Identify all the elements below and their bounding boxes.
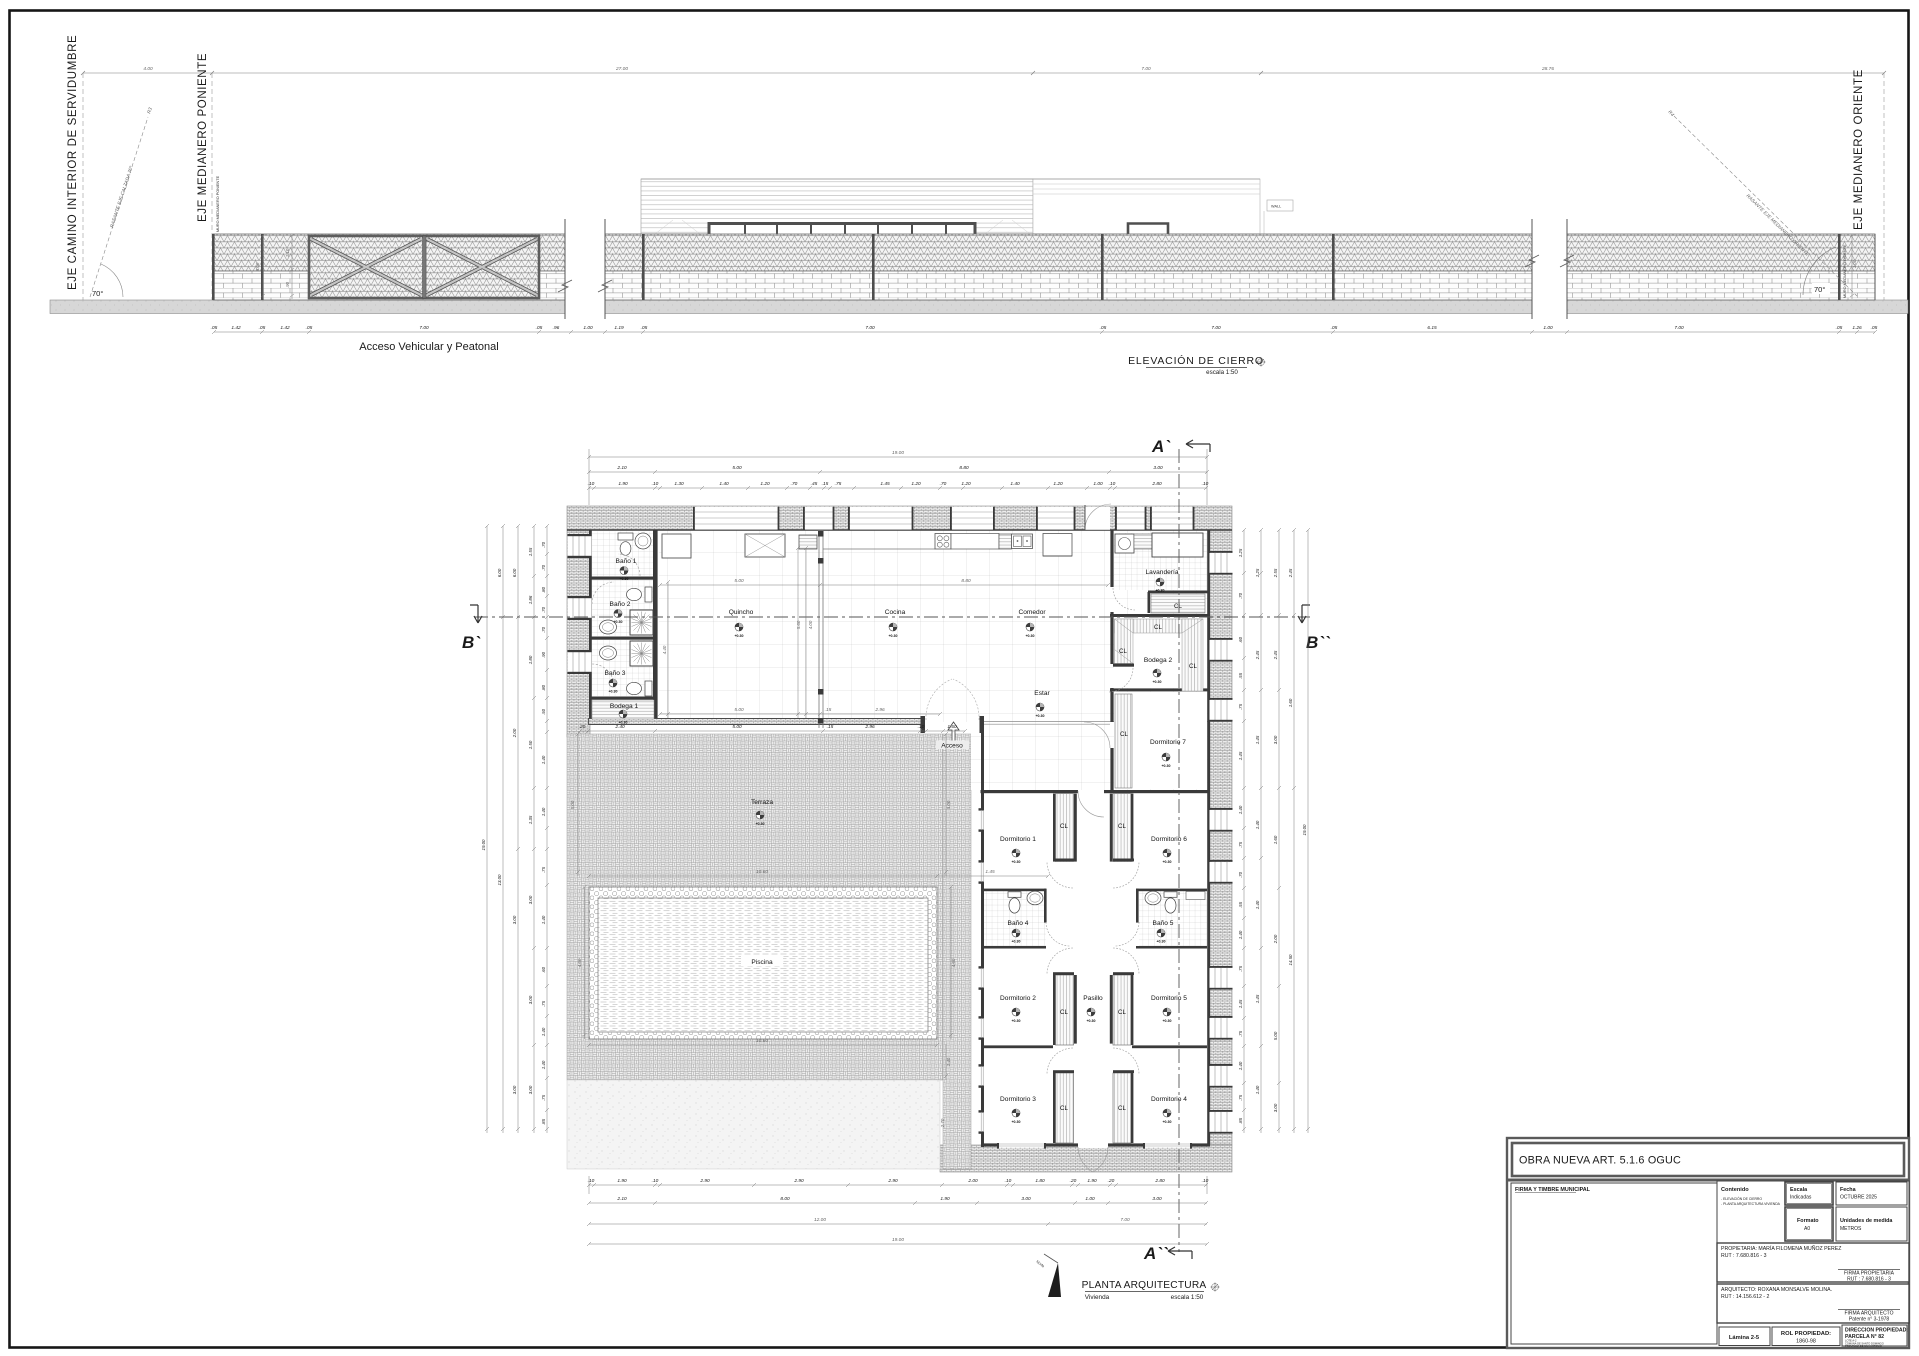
svg-text:1.25: 1.25: [1255, 568, 1260, 577]
svg-text:ELEVACIÓN DE CIERRO: ELEVACIÓN DE CIERRO: [1128, 354, 1264, 367]
svg-text:.70: .70: [791, 481, 798, 487]
svg-text:.10: .10: [1202, 1178, 1209, 1184]
svg-text:3.00: 3.00: [528, 895, 533, 904]
svg-text:2.10: 2.10: [616, 1196, 627, 1202]
svg-text:1.50: 1.50: [528, 740, 533, 749]
svg-text:1.45: 1.45: [880, 481, 890, 487]
svg-text:1860-98: 1860-98: [1796, 1339, 1816, 1345]
svg-text:4.40: 4.40: [662, 645, 667, 654]
svg-text:7.00: 7.00: [1211, 325, 1221, 331]
svg-text:2.00: 2.00: [1273, 934, 1278, 944]
svg-text:2.10: 2.10: [616, 465, 627, 471]
svg-text:Patente n° 3-1978: Patente n° 3-1978: [1849, 1317, 1890, 1323]
svg-text:Vivienda: Vivienda: [1085, 1294, 1110, 1301]
svg-text:+0.30: +0.30: [1011, 1019, 1020, 1023]
svg-text:3.00: 3.00: [1273, 735, 1278, 744]
svg-text:1.40: 1.40: [1238, 1061, 1243, 1070]
svg-text:OCTUBRE 2025: OCTUBRE 2025: [1840, 1195, 1877, 1201]
svg-text:1.55: 1.55: [528, 547, 533, 556]
svg-text:.55: .55: [1238, 901, 1243, 908]
svg-text:.60: .60: [541, 966, 546, 973]
svg-text:.70: .70: [1238, 592, 1243, 599]
svg-text:2.80: 2.80: [1154, 1178, 1165, 1184]
svg-text:Acceso Vehicular y Peatonal: Acceso Vehicular y Peatonal: [359, 341, 498, 353]
svg-text:3.00: 3.00: [1153, 465, 1163, 471]
svg-text:Contenido: Contenido: [1721, 1187, 1749, 1193]
svg-text:CL: CL: [1060, 823, 1068, 830]
svg-text:Bodega 1: Bodega 1: [610, 703, 639, 710]
svg-text:.75: .75: [1238, 965, 1243, 972]
svg-text:5.00: 5.00: [1273, 1031, 1278, 1040]
svg-text:1.45: 1.45: [1255, 994, 1260, 1003]
svg-text:1.60: 1.60: [1273, 835, 1278, 844]
svg-text:.05: .05: [306, 325, 313, 331]
svg-text:+0.30: +0.30: [888, 634, 897, 638]
svg-text:5.00: 5.00: [734, 578, 744, 584]
svg-text:2.90: 2.90: [793, 1178, 804, 1184]
svg-text:CL: CL: [1154, 624, 1162, 631]
svg-text:escala 1:50: escala 1:50: [1171, 1294, 1204, 1301]
svg-text:CL: CL: [1060, 1105, 1068, 1112]
svg-text:.75: .75: [1238, 1030, 1243, 1037]
svg-text:2.45: 2.45: [1273, 650, 1278, 660]
svg-text:1.45: 1.45: [1238, 999, 1243, 1008]
svg-text:1.45: 1.45: [1255, 735, 1260, 744]
svg-text:2.96: 2.96: [874, 707, 885, 713]
svg-text:CL: CL: [1119, 648, 1127, 655]
svg-text:Baño 3: Baño 3: [605, 670, 626, 677]
svg-text:MURO MEDIANERO ORIENTE: MURO MEDIANERO ORIENTE: [1843, 244, 1847, 298]
svg-text:12.00: 12.00: [814, 1217, 826, 1223]
svg-text:Indicadas: Indicadas: [1790, 1195, 1812, 1201]
svg-text:28.76: 28.76: [1541, 66, 1554, 72]
svg-text:escala 1:50: escala 1:50: [1206, 369, 1238, 376]
svg-text:1.00: 1.00: [583, 325, 593, 331]
svg-text:.75: .75: [835, 481, 842, 487]
svg-text:.70: .70: [940, 481, 947, 487]
svg-text:3.00: 3.00: [1152, 1196, 1162, 1202]
svg-text:.10: .10: [1109, 481, 1116, 487]
svg-text:+0.30: +0.30: [618, 721, 627, 725]
svg-text:1.40: 1.40: [541, 915, 546, 924]
svg-text:.70: .70: [1238, 871, 1243, 878]
svg-text:2.90: 2.90: [699, 1178, 710, 1184]
svg-text:1.40: 1.40: [1010, 481, 1020, 487]
svg-text:.75: .75: [541, 1094, 546, 1101]
svg-text:RUT : 7.680.816 - 3: RUT : 7.680.816 - 3: [1721, 1253, 1767, 1259]
svg-text:7.00: 7.00: [1120, 1217, 1130, 1223]
svg-text:FIRMA Y TIMBRE MUNICIPAL: FIRMA Y TIMBRE MUNICIPAL: [1515, 1187, 1591, 1193]
svg-text:+0.30: +0.30: [1035, 714, 1044, 718]
svg-text:1.90: 1.90: [617, 1178, 627, 1184]
svg-text:B``: B``: [1306, 633, 1331, 652]
svg-text:.05: .05: [1331, 325, 1338, 331]
svg-text:Fecha: Fecha: [1840, 1187, 1857, 1193]
svg-text:PROVINCIA DE SAN ANTONIO: PROVINCIA DE SAN ANTONIO: [1845, 1344, 1882, 1348]
svg-text:- ELEVACIÓN DE CIERRO: - ELEVACIÓN DE CIERRO: [1721, 1196, 1762, 1201]
svg-text:.10: .10: [1005, 1178, 1012, 1184]
svg-text:EJE CAMINO INTERIOR DE SERVID: EJE CAMINO INTERIOR DE SERVIDUMBRE: [67, 35, 79, 290]
svg-text:CL: CL: [1118, 1105, 1126, 1112]
svg-text:1.90: 1.90: [1087, 1178, 1097, 1184]
svg-text:1.90: 1.90: [618, 481, 628, 487]
svg-text:6.15: 6.15: [1427, 325, 1437, 331]
svg-text:.05: .05: [641, 325, 648, 331]
svg-text:1.80: 1.80: [1035, 1178, 1045, 1184]
svg-text:7.00: 7.00: [419, 325, 429, 331]
svg-text:- PLANTA ARQUITECTURA VIVIENDA: - PLANTA ARQUITECTURA VIVIENDA: [1721, 1202, 1781, 1206]
svg-text:Terraza: Terraza: [751, 799, 773, 806]
svg-text:3.00: 3.00: [528, 1085, 533, 1094]
svg-text:.75: .75: [1238, 1094, 1243, 1101]
svg-text:14.50: 14.50: [1288, 954, 1293, 966]
svg-text:1.00: 1.00: [1852, 259, 1857, 268]
svg-text:1.30: 1.30: [674, 481, 684, 487]
svg-text:1.20: 1.20: [760, 481, 770, 487]
svg-text:Baño 5: Baño 5: [1153, 920, 1174, 927]
svg-text:1.40: 1.40: [1238, 805, 1243, 814]
svg-text:Unidades de medida: Unidades de medida: [1840, 1218, 1893, 1224]
svg-text:1.45: 1.45: [1238, 751, 1243, 760]
svg-text:Piscina: Piscina: [751, 959, 773, 966]
svg-text:.10: .10: [918, 724, 925, 730]
svg-text:A0: A0: [1804, 1226, 1810, 1232]
svg-text:Dormitorio 3: Dormitorio 3: [1000, 1096, 1036, 1103]
svg-text:27.00: 27.00: [615, 66, 628, 72]
svg-text:19.00: 19.00: [892, 450, 904, 456]
svg-text:.85: .85: [541, 1118, 546, 1125]
svg-text:+0.30: +0.30: [613, 620, 622, 624]
svg-text:1.80: 1.80: [528, 655, 533, 664]
svg-text:CL: CL: [1118, 823, 1126, 830]
svg-text:Estar: Estar: [1034, 690, 1050, 697]
svg-text:8.00: 8.00: [780, 1196, 790, 1202]
svg-text:+0.30: +0.30: [1011, 940, 1020, 944]
svg-text:1.40: 1.40: [946, 1057, 951, 1066]
svg-text:DIRECCION PROPIEDAD:: DIRECCION PROPIEDAD:: [1845, 1328, 1908, 1334]
svg-text:19.00: 19.00: [892, 1237, 904, 1243]
svg-text:CL: CL: [1120, 731, 1128, 738]
svg-text:ARQUITECTO: ROXANA MONSALVE MO: ARQUITECTO: ROXANA MONSALVE MOLINA.: [1721, 1287, 1832, 1293]
svg-text:1.00: 1.00: [1543, 325, 1553, 331]
svg-text:6.00: 6.00: [497, 568, 502, 577]
svg-text:.20: .20: [1070, 1178, 1077, 1184]
svg-text:.75: .75: [541, 1000, 546, 1007]
svg-text:+0.30: +0.30: [1011, 860, 1020, 864]
svg-text:EJE MEDIANERO PONIENTE: EJE MEDIANERO PONIENTE: [197, 53, 209, 222]
svg-text:+0.30: +0.30: [755, 822, 764, 826]
svg-text:CL: CL: [1060, 1009, 1068, 1016]
svg-text:3.00: 3.00: [512, 1085, 517, 1094]
svg-text:.85: .85: [1238, 1117, 1243, 1124]
svg-text:Dormitorio 1: Dormitorio 1: [1000, 836, 1036, 843]
svg-text:8.80: 8.80: [959, 465, 969, 471]
svg-text:6.00: 6.00: [512, 568, 517, 577]
svg-text:Formato: Formato: [1797, 1218, 1819, 1224]
svg-text:1.20: 1.20: [1053, 481, 1063, 487]
svg-text:.96: .96: [553, 325, 560, 331]
svg-text:.05: .05: [1871, 325, 1878, 331]
svg-text:.15: .15: [827, 724, 834, 730]
svg-text:1.45: 1.45: [985, 869, 995, 875]
svg-text:1.40: 1.40: [1255, 820, 1260, 829]
svg-text:+0.30: +0.30: [1086, 1019, 1095, 1023]
svg-text:2.40: 2.40: [614, 724, 625, 730]
svg-text:Bodega 2: Bodega 2: [1144, 657, 1173, 664]
svg-text:Dormitorio 5: Dormitorio 5: [1151, 995, 1187, 1002]
svg-text:2.96: 2.96: [864, 724, 875, 730]
svg-text:.15: .15: [822, 481, 829, 487]
svg-text:1.40: 1.40: [541, 1060, 546, 1069]
svg-text:1.00: 1.00: [1085, 1196, 1095, 1202]
svg-text:.70: .70: [541, 564, 546, 571]
svg-text:+0.30: +0.30: [734, 634, 743, 638]
svg-text:1.25: 1.25: [1238, 548, 1243, 557]
svg-text:2.45: 2.45: [1288, 568, 1293, 578]
svg-text:1.42: 1.42: [231, 325, 241, 331]
svg-text:Pasillo: Pasillo: [1083, 995, 1103, 1002]
svg-text:5.00: 5.00: [570, 800, 575, 809]
svg-text:+0.30: +0.30: [1025, 634, 1034, 638]
svg-text:.10: .10: [588, 481, 595, 487]
svg-text:Dormitorio 4: Dormitorio 4: [1151, 1096, 1187, 1103]
svg-text:70°: 70°: [1814, 285, 1825, 294]
svg-text:.90: .90: [285, 281, 290, 288]
svg-text:13.00: 13.00: [497, 874, 502, 886]
svg-text:1.20: 1.20: [911, 481, 921, 487]
svg-text:70°: 70°: [92, 289, 103, 298]
svg-text:1.40: 1.40: [541, 1027, 546, 1036]
svg-text:1.86: 1.86: [528, 595, 533, 604]
svg-text:2.80: 2.80: [1151, 481, 1162, 487]
svg-text:.60: .60: [1238, 636, 1243, 643]
svg-text:.70: .70: [541, 626, 546, 633]
svg-text:.20: .20: [579, 724, 586, 730]
svg-text:1.60: 1.60: [1288, 698, 1293, 707]
svg-text:Quincho: Quincho: [729, 609, 754, 616]
svg-text:Lavandería: Lavandería: [1146, 569, 1179, 576]
svg-text:.75: .75: [541, 866, 546, 873]
svg-text:3.00: 3.00: [255, 262, 260, 271]
svg-text:.90: .90: [541, 651, 546, 658]
svg-text:1.20: 1.20: [961, 481, 971, 487]
svg-text:1.40: 1.40: [719, 481, 729, 487]
svg-text:1.10: 1.10: [285, 248, 290, 257]
svg-text:.05: .05: [1836, 325, 1843, 331]
svg-text:5.00: 5.00: [734, 707, 744, 713]
svg-text:2.90: 2.90: [887, 1178, 898, 1184]
svg-text:3.00: 3.00: [528, 995, 533, 1004]
svg-text:1.19: 1.19: [614, 325, 624, 331]
svg-text:.75: .75: [1238, 703, 1243, 710]
svg-text:.10: .10: [588, 1178, 595, 1184]
svg-text:CL: CL: [1174, 603, 1182, 610]
svg-text:1.35: 1.35: [528, 815, 533, 824]
svg-text:4.00: 4.00: [143, 66, 153, 72]
svg-text:3.00: 3.00: [512, 915, 517, 924]
svg-text:1.40: 1.40: [1255, 1085, 1260, 1094]
svg-text:Baño 2: Baño 2: [610, 601, 631, 608]
svg-text:8.80: 8.80: [961, 578, 971, 584]
svg-text:2.70: 2.70: [940, 1118, 945, 1128]
svg-text:.10: .10: [652, 1178, 659, 1184]
svg-text:1.60: 1.60: [947, 724, 957, 730]
svg-text:+0.30: +0.30: [1011, 1120, 1020, 1124]
svg-text:.80: .80: [541, 586, 546, 593]
svg-text:4.00: 4.00: [808, 620, 813, 629]
svg-text:.20: .20: [1108, 1178, 1115, 1184]
svg-text:2.45: 2.45: [1255, 650, 1260, 660]
svg-text:+0.30: +0.30: [608, 690, 617, 694]
svg-text:1.40: 1.40: [541, 807, 546, 816]
svg-text:1.90: 1.90: [940, 1196, 950, 1202]
svg-text:.70: .70: [541, 541, 546, 548]
svg-text:PLANTA ARQUITECTURA: PLANTA ARQUITECTURA: [1082, 1280, 1207, 1291]
svg-text:19.00: 19.00: [481, 839, 486, 851]
svg-text:.70: .70: [541, 606, 546, 613]
svg-text:1.40: 1.40: [1238, 930, 1243, 939]
svg-text:2.00: 2.00: [967, 1178, 978, 1184]
svg-text:.10: .10: [1202, 481, 1209, 487]
svg-text:RUT : 7.680.816 - 3: RUT : 7.680.816 - 3: [1847, 1277, 1891, 1283]
svg-text:5.60: 5.60: [796, 620, 801, 629]
svg-text:+0.30: +0.30: [1155, 589, 1164, 593]
svg-text:.05: .05: [536, 325, 543, 331]
svg-text:B`: B`: [462, 633, 481, 652]
svg-text:Baño 4: Baño 4: [1008, 920, 1029, 927]
svg-text:EJE MEDIANERO ORIENTE: EJE MEDIANERO ORIENTE: [1853, 69, 1865, 230]
svg-text:METROS: METROS: [1840, 1226, 1862, 1232]
svg-text:CL: CL: [1189, 663, 1197, 670]
svg-text:ROL PROPIEDAD:: ROL PROPIEDAD:: [1781, 1331, 1831, 1337]
svg-text:1.40: 1.40: [541, 755, 546, 764]
svg-text:PROPIETARIA: MARÍA FILOMENA MU: PROPIETARIA: MARÍA FILOMENA MUÑOZ PEREZ: [1721, 1245, 1841, 1252]
svg-text:2.00: 2.00: [512, 728, 517, 738]
svg-text:10.60: 10.60: [756, 869, 768, 875]
svg-text:.55: .55: [1238, 672, 1243, 679]
svg-text:2.55: 2.55: [1273, 568, 1278, 578]
svg-text:7.00: 7.00: [1674, 325, 1684, 331]
svg-text:+0.30: +0.30: [1162, 1019, 1171, 1023]
svg-text:1.42: 1.42: [280, 325, 290, 331]
svg-text:Cocina: Cocina: [885, 609, 906, 616]
svg-text:+0.30: +0.30: [1152, 680, 1161, 684]
svg-text:.05: .05: [211, 325, 218, 331]
svg-text:7.00: 7.00: [865, 325, 875, 331]
svg-text:Dormitorio 6: Dormitorio 6: [1151, 836, 1187, 843]
svg-text:+0.30: +0.30: [1161, 764, 1170, 768]
svg-text:+0.30: +0.30: [1156, 940, 1165, 944]
svg-text:.10: .10: [652, 481, 659, 487]
svg-text:5.00: 5.00: [732, 465, 742, 471]
svg-text:.05: .05: [1100, 325, 1107, 331]
svg-text:OBRA NUEVA ART. 5.1.6 OGUC: OBRA NUEVA ART. 5.1.6 OGUC: [1519, 1155, 1681, 1167]
svg-text:10.60: 10.60: [756, 1038, 768, 1044]
svg-text:.80: .80: [541, 684, 546, 691]
svg-text:.50: .50: [541, 708, 546, 715]
svg-text:CL: CL: [1118, 1009, 1126, 1016]
svg-text:5.00: 5.00: [946, 800, 951, 809]
svg-text:+0.30: +0.30: [1162, 860, 1171, 864]
svg-text:A`: A`: [1151, 437, 1171, 456]
svg-text:.45: .45: [811, 481, 818, 487]
svg-text:1.00: 1.00: [1093, 481, 1103, 487]
svg-text:WALL: WALL: [1271, 205, 1281, 209]
svg-text:MURO MEDIANERO PONIENTE: MURO MEDIANERO PONIENTE: [216, 175, 220, 232]
svg-text:Dormitorio 2: Dormitorio 2: [1000, 995, 1036, 1002]
svg-text:19.00: 19.00: [1302, 824, 1307, 836]
svg-text:.75: .75: [1238, 841, 1243, 848]
svg-text:1.40: 1.40: [1255, 900, 1260, 909]
svg-text:.15: .15: [825, 707, 832, 713]
svg-text:RUT : 14.156.612 - 2: RUT : 14.156.612 - 2: [1721, 1294, 1769, 1300]
svg-text:3.00: 3.00: [1021, 1196, 1031, 1202]
svg-text:Escala: Escala: [1790, 1187, 1808, 1193]
svg-text:7.00: 7.00: [1141, 66, 1151, 72]
svg-text:1.26: 1.26: [1852, 325, 1862, 331]
svg-text:A``: A``: [1143, 1244, 1169, 1263]
svg-text:4.60: 4.60: [577, 958, 582, 967]
svg-text:Acceso: Acceso: [941, 743, 963, 750]
svg-text:3.00: 3.00: [1273, 1103, 1278, 1112]
svg-text:Dormitorio 7: Dormitorio 7: [1150, 739, 1186, 746]
svg-text:+0.30: +0.30: [1162, 1120, 1171, 1124]
svg-text:5.00: 5.00: [732, 724, 742, 730]
svg-text:.05: .05: [259, 325, 266, 331]
svg-text:Lámina 2-5: Lámina 2-5: [1729, 1335, 1760, 1341]
svg-text:Comedor: Comedor: [1018, 609, 1046, 616]
svg-text:Baño 1: Baño 1: [616, 558, 637, 565]
svg-text:4.60: 4.60: [951, 958, 956, 967]
